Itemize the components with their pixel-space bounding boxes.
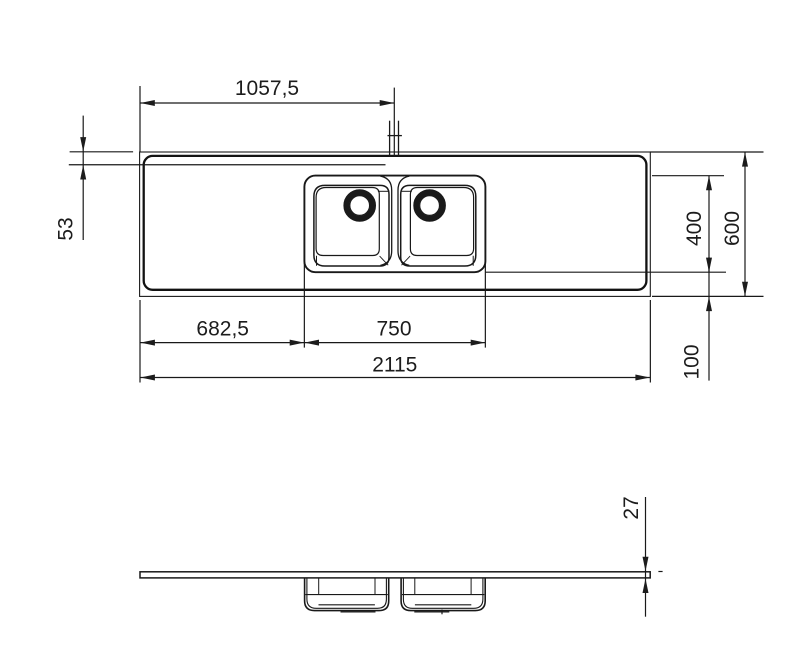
- svg-text:100: 100: [681, 344, 704, 379]
- svg-text:750: 750: [376, 318, 411, 341]
- svg-text:1057,5: 1057,5: [235, 77, 299, 100]
- svg-text:53: 53: [55, 217, 78, 240]
- svg-text:600: 600: [721, 211, 744, 246]
- svg-text:682,5: 682,5: [196, 318, 249, 341]
- svg-text:27: 27: [620, 496, 643, 519]
- svg-text:400: 400: [683, 211, 706, 246]
- svg-text:2115: 2115: [372, 354, 417, 377]
